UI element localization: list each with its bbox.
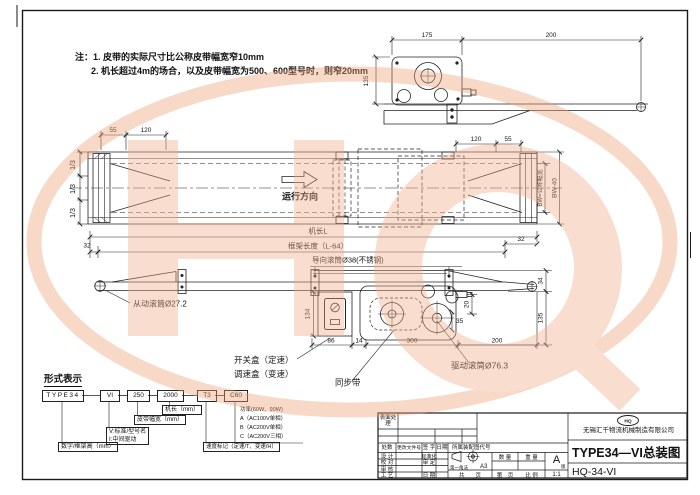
tb-standardize: 标准化 — [420, 454, 438, 460]
tb-change-doc: 更改文件号 — [396, 446, 422, 452]
tb-assembly-code: 所属装配图代号 — [452, 445, 491, 451]
designation-box-type34: TYPE34 — [42, 390, 84, 402]
tb-process: 工 艺 — [378, 473, 396, 479]
tb-quantity: 数 量 — [492, 455, 518, 461]
power-option-c: C（AC200V三相） — [240, 432, 286, 440]
tb-qty-changes: 处数 — [378, 445, 396, 451]
tb-date: 日期 — [436, 445, 448, 451]
designation-box-2000: 2000 — [157, 390, 184, 402]
frame-height-callout: 数字/框架高（mm） — [58, 442, 118, 452]
designation-title: 形式表示 — [44, 371, 82, 387]
tb-review: 审 核 — [378, 467, 396, 473]
designation-box-t3: T3 — [197, 390, 217, 402]
power-option-b: B（AC200V单相） — [240, 423, 286, 431]
tb-drawing-title: TYPE34—VI总装图 — [572, 446, 680, 460]
tb-scale-label: 比 例 — [518, 473, 545, 479]
tb-page-no: 第 页 — [492, 473, 518, 479]
tb-design: 设 计 — [378, 454, 396, 460]
tb-signature: 签 字 — [422, 445, 436, 451]
designation-box-250: 250 — [127, 390, 150, 402]
tb-weight: 重 量 — [518, 455, 545, 461]
tb-scale-value: 1:1 — [545, 472, 568, 478]
tb-proofread: 校 对 — [378, 460, 396, 466]
tb-surface-treatment: 表面处理 — [379, 415, 397, 427]
note-line-2: 2. 机长超过4m的场合，以及皮带幅宽为500、600型号时，则窄20mm — [91, 64, 368, 77]
designation-box-vi: VI — [100, 390, 120, 402]
designation-box-c60: C60 — [224, 390, 248, 402]
tb-company-name: 无锡汇千物流机械制造有限公司 — [570, 428, 687, 434]
tb-revision-suffix: 版 — [561, 464, 566, 470]
tb-drawing-number: HQ-34-VI — [572, 467, 616, 478]
tb-first-angle: 第一角法 — [450, 465, 468, 471]
tb-sheet-size: A3 — [480, 464, 487, 470]
tb-date-2: 日 期 — [420, 473, 438, 479]
v-standard-label: V:标准/型号名 — [109, 428, 146, 436]
note-line-1: 注：1. 皮带的实际尺寸比公称皮带幅宽窄10mm — [75, 50, 264, 63]
power-option-a: A（AC100V单相） — [240, 414, 286, 422]
tb-approve: 审 定 — [420, 460, 438, 466]
tb-total-pages: 共 页 — [448, 473, 492, 479]
power-label: 功率(60W、90W) — [240, 405, 283, 413]
text-labels: 注：1. 皮带的实际尺寸比公称皮带幅宽窄10mm 2. 机长超过4m的场合，以及… — [0, 0, 700, 495]
machine-length-callout: 机长（mm） — [162, 405, 202, 415]
belt-width-callout: 皮带幅宽（mm） — [134, 415, 186, 425]
speed-mark-callout: 速度标记（定速/T、变速/H） — [203, 442, 280, 452]
